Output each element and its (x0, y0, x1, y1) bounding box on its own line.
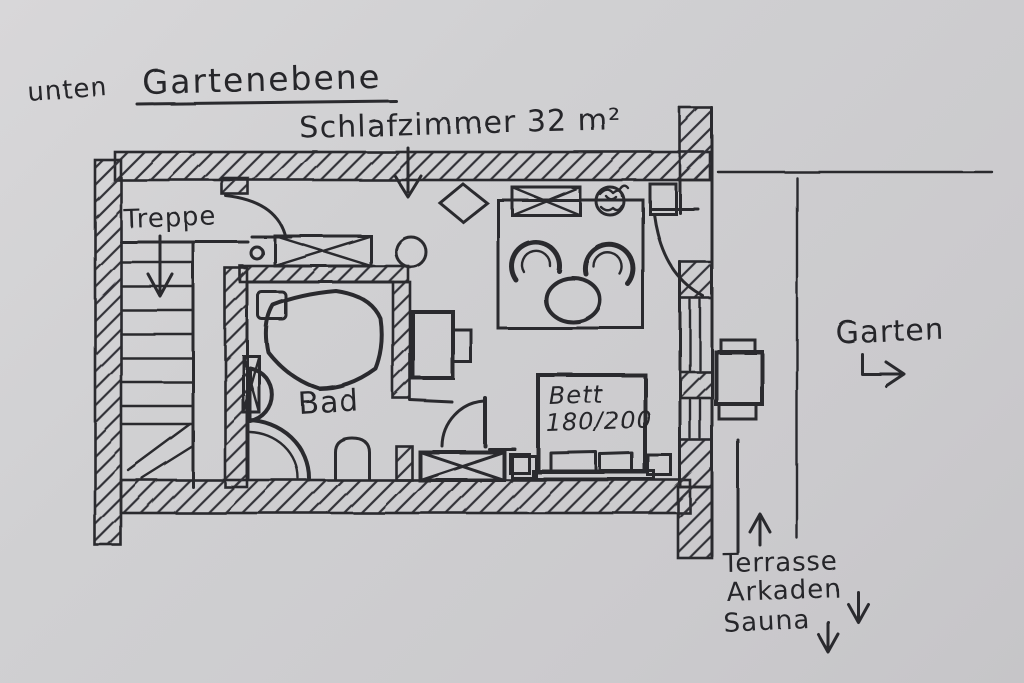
bed-size-label: 180/200 (545, 405, 653, 437)
page-title: Gartenebene (137, 57, 396, 104)
bathroom-door (442, 398, 515, 449)
armchair-left (512, 242, 560, 280)
garten-arrow (862, 354, 904, 386)
door-knob-dot (251, 247, 263, 259)
treppe-label: Treppe (122, 202, 217, 235)
paper-sheet: Treppe (0, 0, 1024, 683)
shower (248, 420, 309, 478)
room-label: Schlafzimmer 32 m² (299, 103, 621, 146)
wall-right (678, 108, 738, 558)
wardrobe-left (275, 236, 371, 266)
stair-steps (121, 262, 193, 478)
toilet (335, 438, 369, 479)
pillow (551, 452, 596, 469)
desk-chair (453, 330, 471, 362)
ceiling-diamond (440, 184, 487, 222)
coffee-table (546, 278, 600, 322)
arkaden-label: Arkaden (726, 574, 842, 608)
bathtub (266, 291, 382, 389)
terrasse-up-arrow (750, 514, 770, 545)
seating-area (498, 200, 643, 328)
desk (413, 312, 471, 378)
garten-label: Garten (835, 312, 945, 351)
wall-left (95, 160, 121, 545)
stool (396, 237, 426, 267)
armchair-right (585, 245, 633, 284)
bed-label: Bett (548, 380, 604, 410)
radiator (396, 446, 536, 480)
title-underline (137, 101, 396, 104)
svg-text:Gartenebene: Gartenebene (142, 57, 381, 102)
wall-bottom (121, 480, 690, 513)
wall-top (115, 152, 710, 180)
pillow (600, 453, 632, 469)
bed-headboard (533, 471, 654, 479)
bed: Bett 180/200 (510, 375, 671, 479)
sauna-down-arrow (818, 622, 838, 652)
arkaden-down-arrow (848, 592, 868, 622)
level-hint-label: unten (26, 72, 109, 108)
floorplan-sketch: Treppe (0, 0, 1024, 683)
entrance-door (222, 178, 291, 238)
bad-label: Bad (298, 384, 361, 422)
sauna-label: Sauna (723, 605, 811, 639)
window-right (690, 300, 700, 438)
terrace-bench (716, 340, 762, 419)
